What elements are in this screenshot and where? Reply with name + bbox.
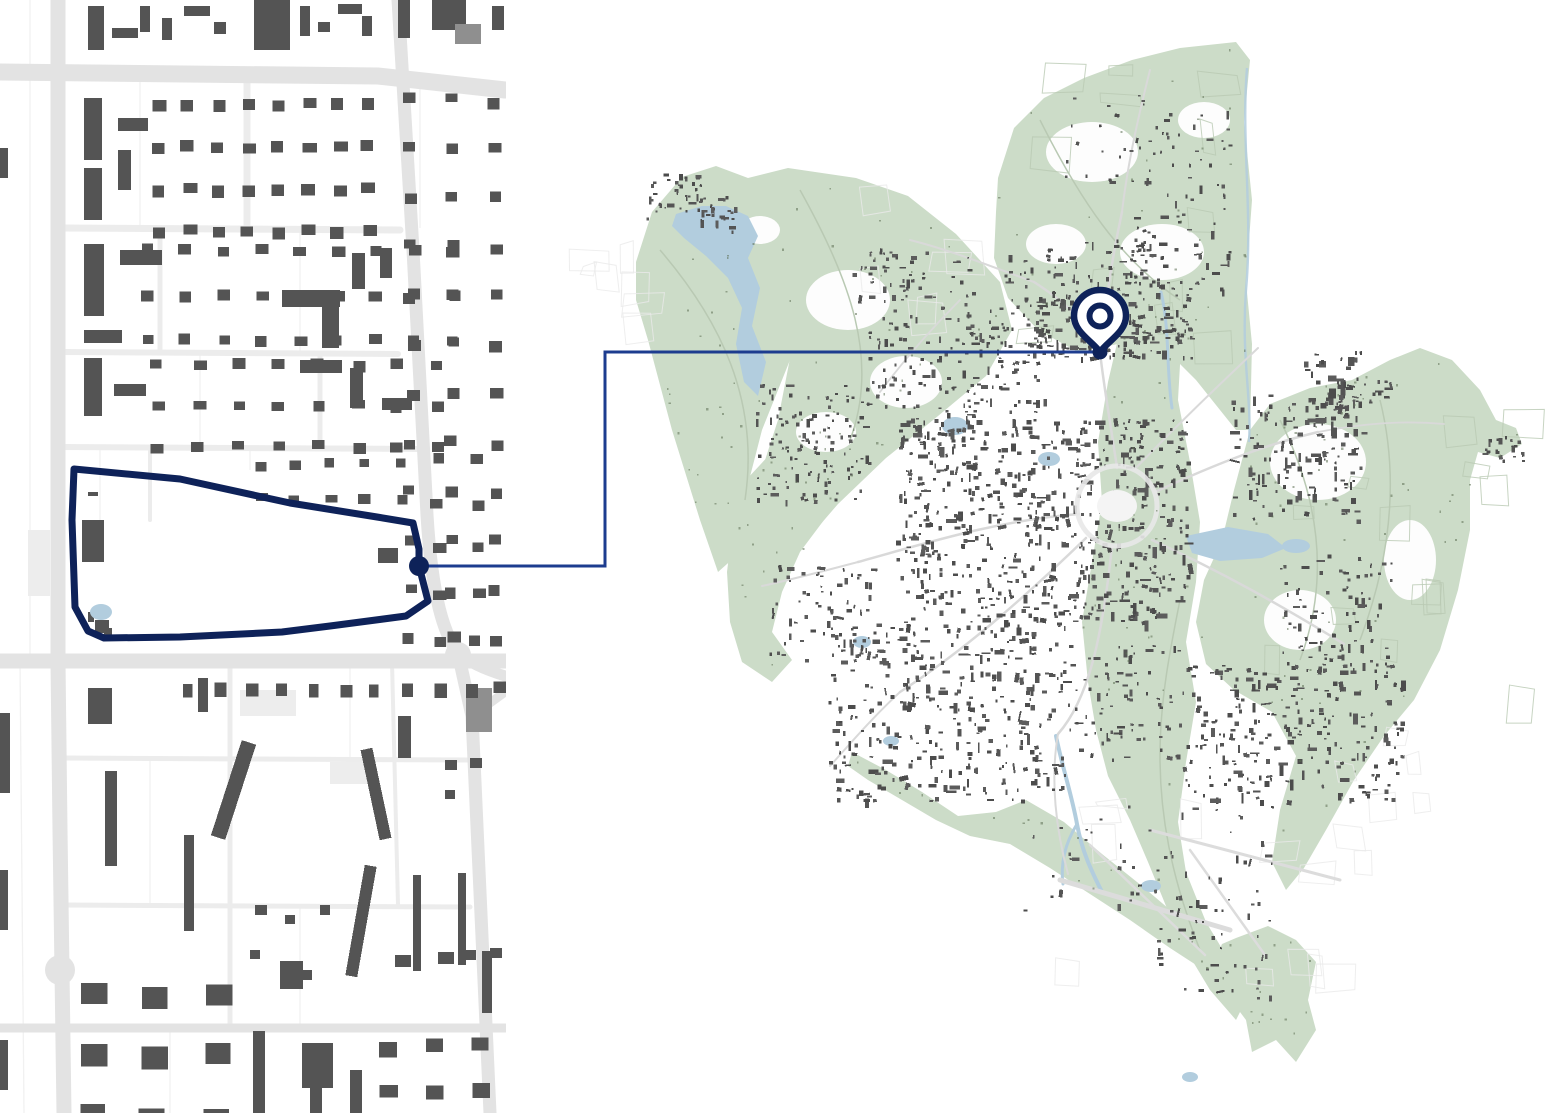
old-town-plaza <box>1097 490 1137 522</box>
site-anchor-dot <box>409 556 429 576</box>
pin-inner-circle <box>1090 306 1111 327</box>
site-pond <box>90 604 112 620</box>
site-location-diagram <box>0 0 1553 1113</box>
diagram-svg <box>0 0 1553 1113</box>
